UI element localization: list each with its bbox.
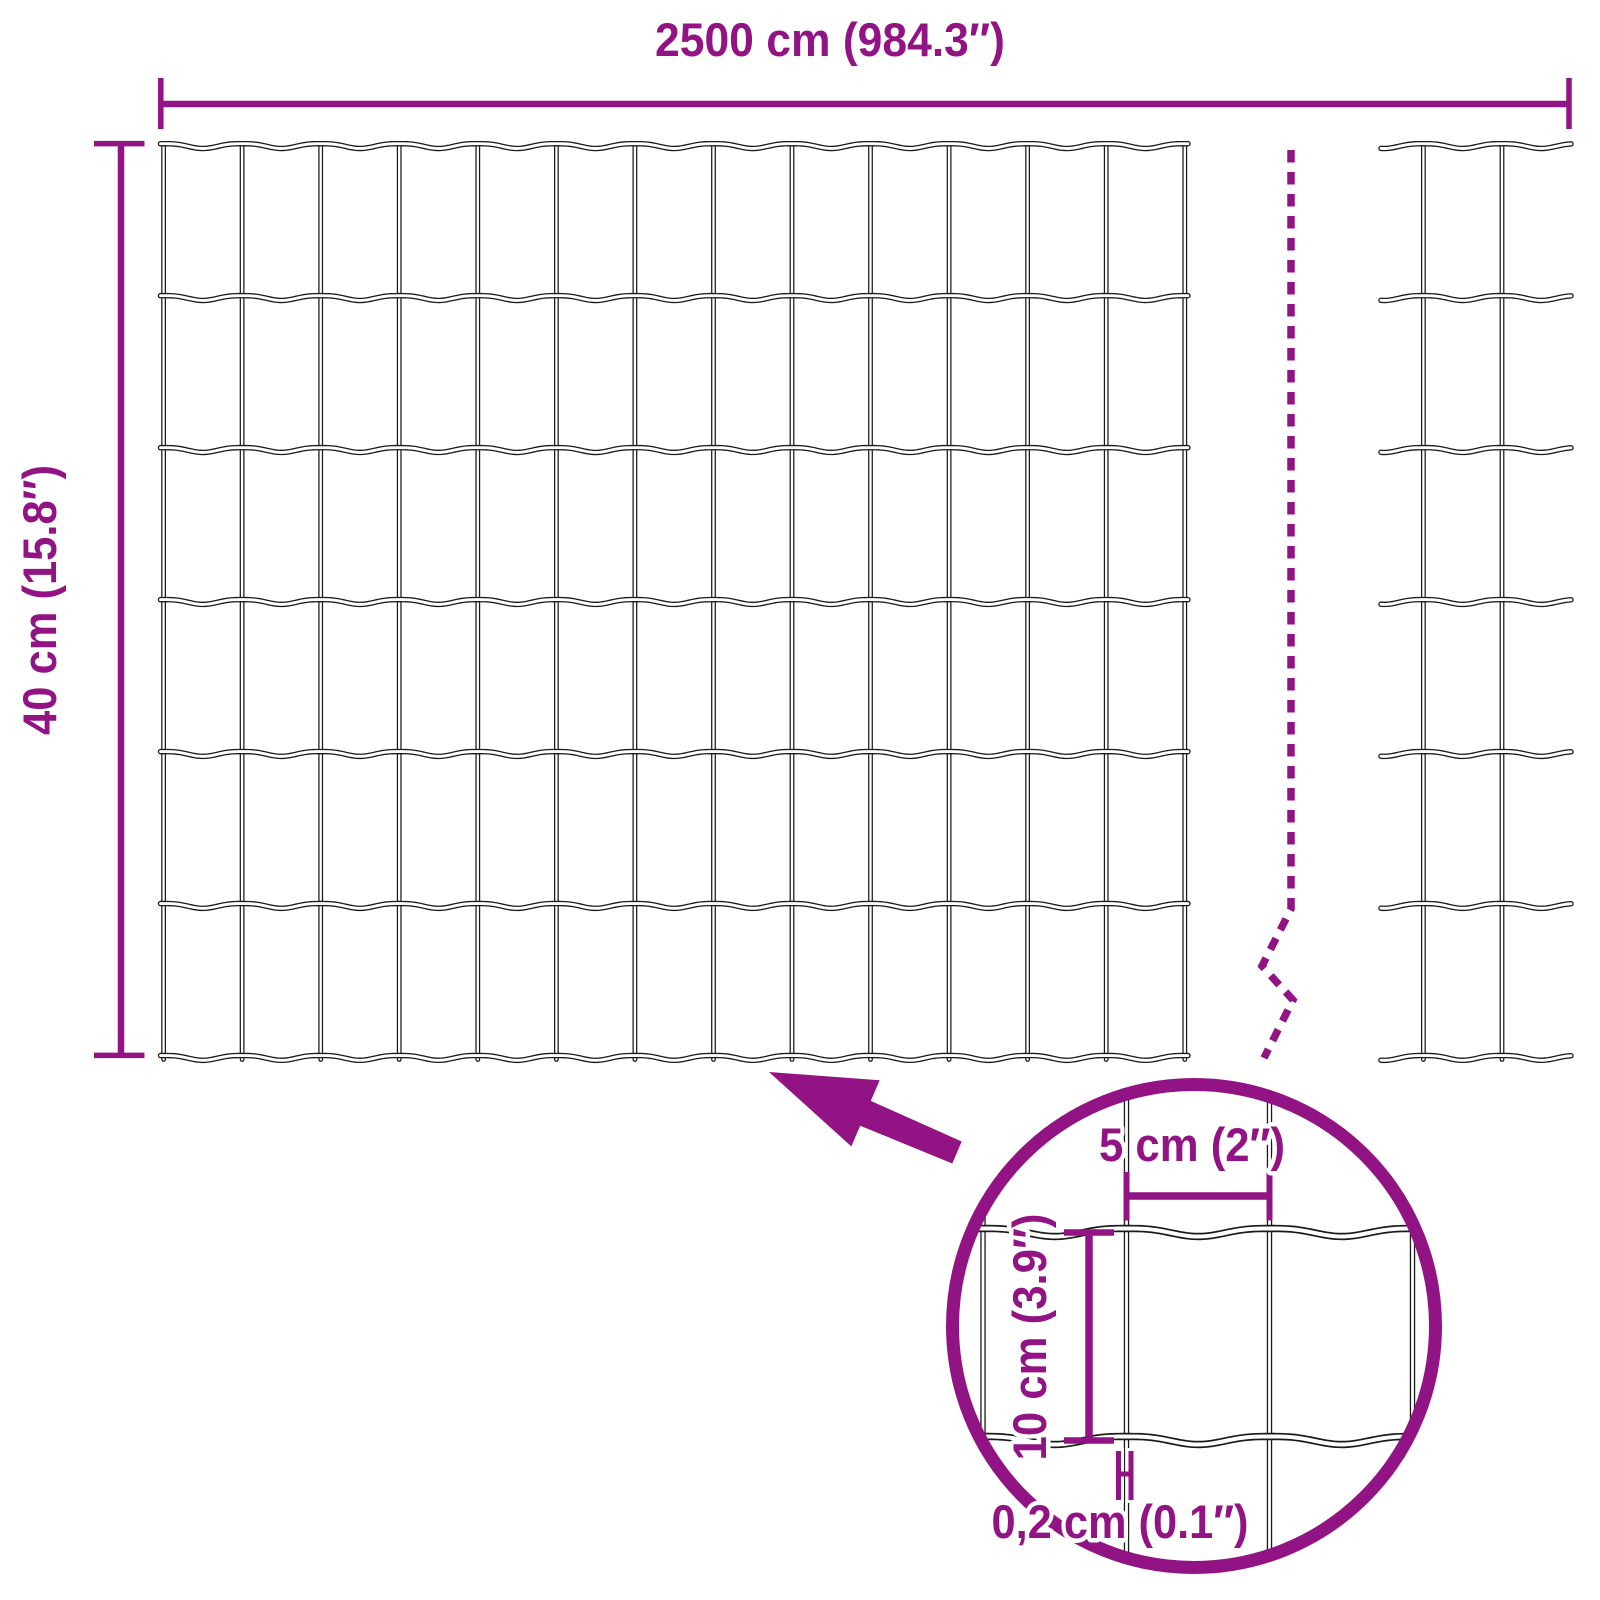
svg-text:5 cm (2″): 5 cm (2″) [1099, 1118, 1285, 1171]
svg-text:2500 cm (984.3″): 2500 cm (984.3″) [655, 13, 1005, 66]
svg-text:40 cm (15.8″): 40 cm (15.8″) [13, 465, 66, 735]
svg-text:0,2 cm (0.1″): 0,2 cm (0.1″) [992, 1495, 1249, 1548]
svg-text:10 cm (3.9″): 10 cm (3.9″) [1003, 1214, 1056, 1461]
